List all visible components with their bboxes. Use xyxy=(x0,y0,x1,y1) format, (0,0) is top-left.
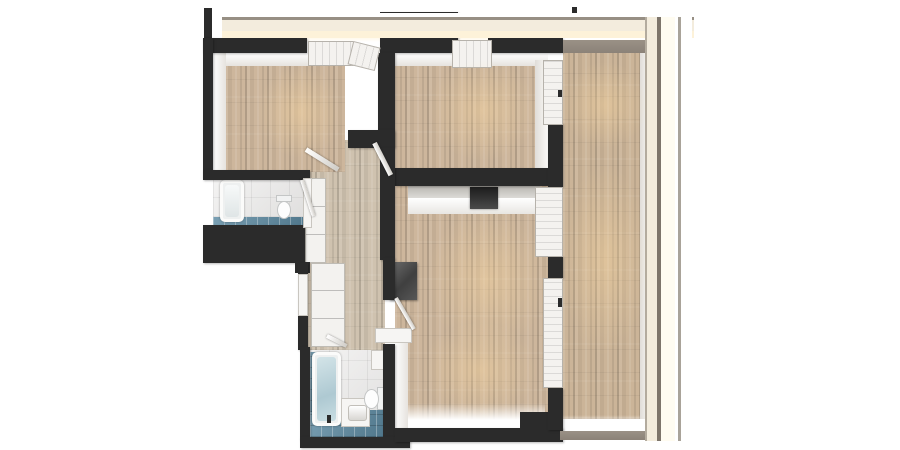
wall-bedroom1-bottom xyxy=(203,170,310,180)
wall-mass-left xyxy=(203,225,305,263)
living-kitchen-floor xyxy=(395,186,548,428)
wall-top-left xyxy=(203,38,307,53)
wall-bathroom2-left xyxy=(300,347,310,440)
kitchen-window xyxy=(535,187,563,257)
door-handle-1 xyxy=(558,90,562,97)
wall-behind-fridge xyxy=(383,258,395,300)
bedroom2-window xyxy=(452,40,492,68)
entry-door xyxy=(298,274,308,316)
wall-bathroom2-bottom xyxy=(300,437,410,448)
wall-top-right xyxy=(488,38,563,53)
bedroom2-floor xyxy=(395,53,548,170)
toilet-2 xyxy=(364,385,385,412)
bedroom1-wall-face-left xyxy=(213,53,226,172)
wall-hall-top xyxy=(348,130,395,148)
wall-bedroom2-bottom xyxy=(395,168,548,186)
wall-right-seg3 xyxy=(548,388,563,430)
bedroom1-window-corner xyxy=(348,41,381,71)
door-handle-2 xyxy=(558,298,562,307)
wall-right-seg2 xyxy=(548,256,563,278)
wall-stub-topleft xyxy=(204,8,212,40)
wall-left-upper xyxy=(203,38,213,178)
cooktop xyxy=(470,187,498,209)
railing-top-band xyxy=(222,13,694,38)
bathtub-1 xyxy=(220,180,244,222)
railing-right-band xyxy=(645,17,692,441)
bathtub-2 xyxy=(312,352,341,426)
wall-bathroom2-right xyxy=(383,344,395,440)
toilet-1 xyxy=(274,195,294,221)
balcony-floor xyxy=(563,53,647,419)
kitchen-counter xyxy=(408,186,540,214)
wall-right-seg1 xyxy=(548,123,563,187)
sliding-balcony-door xyxy=(543,278,563,388)
wall-stub-white xyxy=(375,328,412,343)
bath-faucet xyxy=(327,415,331,423)
living-wall-face-left xyxy=(395,328,408,428)
floorplan-render xyxy=(0,0,900,450)
bedroom1-floor xyxy=(213,53,345,172)
